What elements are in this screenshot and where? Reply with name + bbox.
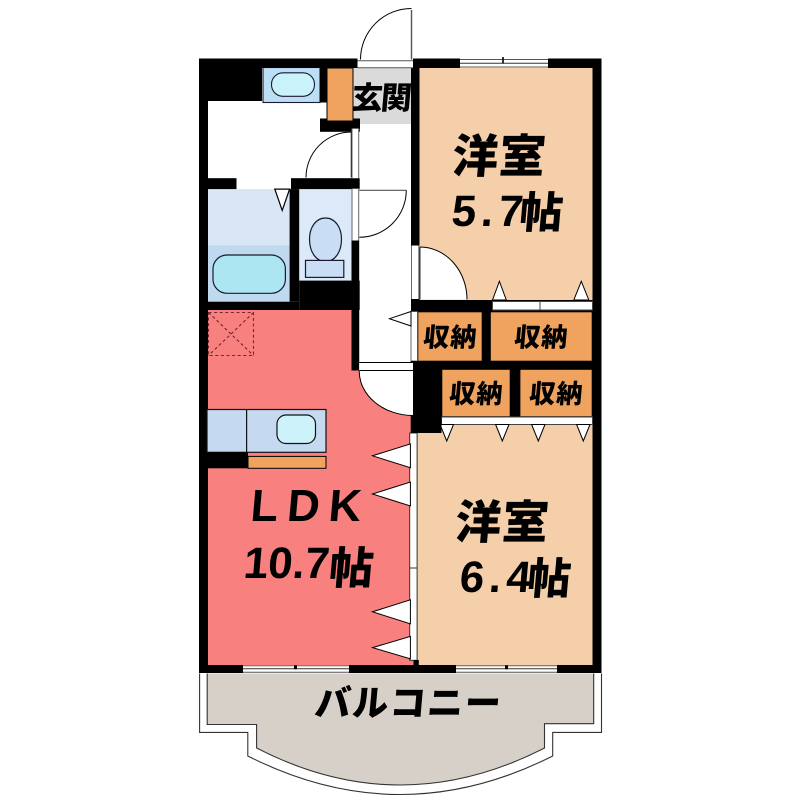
svg-text:LDK: LDK	[249, 480, 373, 531]
svg-text:6.4: 6.4	[458, 553, 538, 602]
svg-text:5.7: 5.7	[450, 187, 530, 236]
svg-text:10.7: 10.7	[242, 539, 332, 588]
